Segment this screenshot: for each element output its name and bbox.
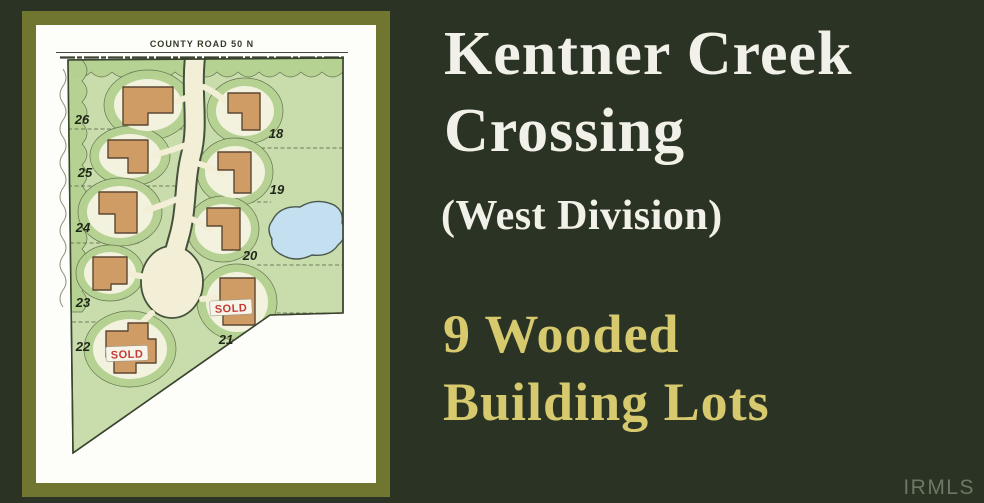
listing-graphic: COUNTY ROAD 50 N [0,0,984,503]
lot-label-19: 19 [270,182,285,197]
lot-label-20: 20 [242,248,258,263]
plat-map: COUNTY ROAD 50 N [36,25,376,483]
lot-label-21: 21 [218,332,233,347]
tagline: 9 Wooded Building Lots [443,300,770,436]
county-road-label: COUNTY ROAD 50 N [150,39,254,49]
sold-badge-lot-22: SOLD [106,345,148,361]
title-line-1: Kentner Creek [444,16,852,93]
tagline-line-2: Building Lots [443,368,770,436]
lot-label-26: 26 [74,112,90,127]
development-title: Kentner Creek Crossing [444,16,852,170]
lot-label-22: 22 [75,339,91,354]
development-subtitle: (West Division) [441,192,723,240]
lot-label-18: 18 [269,126,284,141]
sold-badge-text: SOLD [111,348,144,361]
lot-label-25: 25 [77,165,93,180]
sold-badge-lot-21: SOLD [210,299,253,316]
sold-badge-text: SOLD [214,302,247,316]
mls-watermark: IRMLS [903,476,975,500]
tagline-line-1: 9 Wooded [443,300,770,368]
cul-de-sac [141,246,203,318]
lot-label-23: 23 [75,295,91,310]
plat-map-card: COUNTY ROAD 50 N [22,11,390,497]
creek-line [60,69,66,307]
title-line-2: Crossing [444,93,852,170]
lot-label-24: 24 [75,220,91,235]
